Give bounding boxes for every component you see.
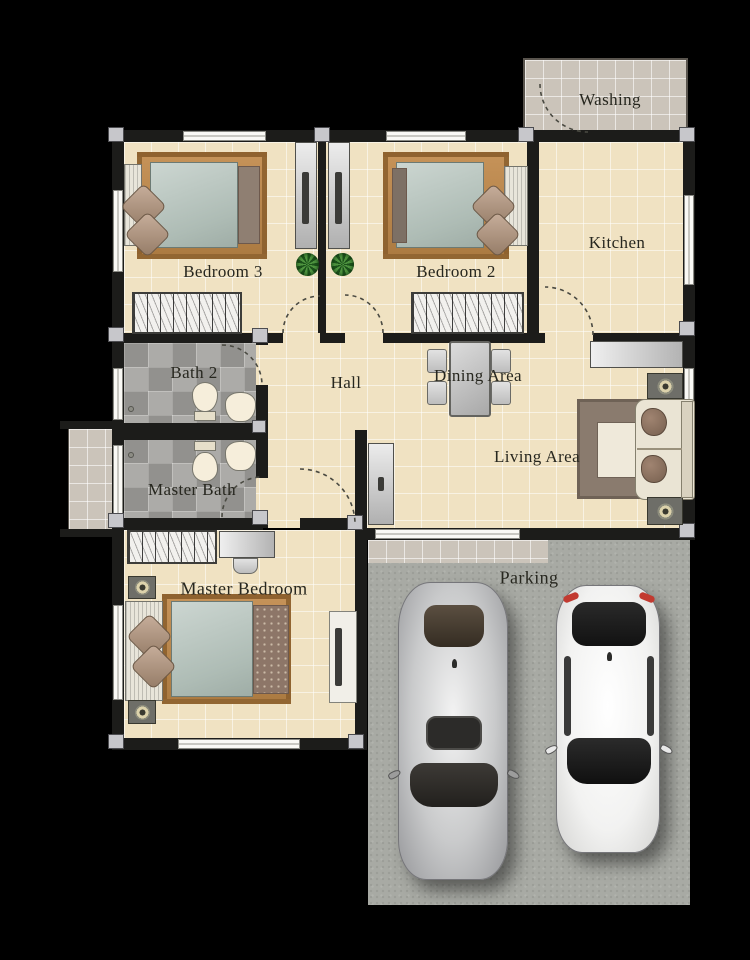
hall-cabinet-panel [335, 172, 342, 224]
bedroom2-wardrobe [411, 292, 524, 334]
corner-block [679, 321, 695, 336]
corner-block [252, 420, 266, 433]
potted-plant [296, 253, 319, 276]
master-speaker [128, 576, 156, 599]
window-masterbath-left [113, 445, 123, 518]
master-mattress [171, 601, 253, 697]
room-label-masterbath: Master Bath [148, 480, 236, 500]
sofa-cushion [641, 408, 667, 436]
window-bath2-left [113, 368, 123, 420]
bedroom3-wardrobe [132, 292, 242, 334]
car-white [556, 585, 660, 853]
room-label-living: Living Area [494, 447, 580, 467]
entrance-sliding-door [375, 529, 520, 539]
car-windshield [567, 738, 651, 784]
wall-porch-bottom [60, 529, 124, 537]
entry-walkway-tiles [368, 540, 548, 563]
master-tv-cabinet [329, 611, 357, 703]
master-tv [335, 628, 342, 686]
corner-block [108, 127, 124, 142]
bath-fitting [128, 406, 134, 412]
wall-porch-top [60, 421, 124, 429]
master-speaker [128, 700, 156, 724]
wall-bedroom2-kitchen [527, 142, 539, 333]
corner-block [108, 734, 124, 749]
living-sideboard [590, 341, 683, 368]
master-wardrobe [127, 530, 217, 564]
bedroom3-folded-blanket [238, 166, 260, 244]
entry-cabinet-handle [378, 477, 384, 491]
car-roof-glass [572, 602, 646, 646]
wall-bedroom-divider [318, 142, 326, 333]
wall-bath-divider [124, 423, 268, 440]
room-label-hall: Hall [331, 373, 362, 393]
window-bedroom2-top [386, 131, 466, 141]
living-speaker [647, 373, 683, 399]
room-label-kitchen: Kitchen [589, 233, 646, 253]
masterbath-sink [225, 441, 256, 471]
car-silver [398, 582, 508, 880]
room-label-bedroom3: Bedroom 3 [183, 262, 263, 282]
potted-plant [331, 253, 354, 276]
master-dotted-blanket [253, 605, 289, 694]
corner-block [679, 127, 695, 142]
car-antenna [452, 659, 457, 668]
corner-block [252, 510, 268, 525]
window-master-bottom [178, 739, 300, 749]
room-label-parking: Parking [500, 568, 559, 589]
living-sofa-back [681, 401, 693, 498]
master-desk [219, 531, 275, 558]
corner-block [518, 127, 534, 142]
car-windshield [410, 763, 498, 807]
masterbath-toilet-bowl [192, 452, 218, 482]
window-bedroom3-left [113, 190, 123, 272]
corner-block [252, 328, 268, 343]
hall-cabinet-panel [302, 172, 309, 224]
bath2-toilet-tank [194, 411, 216, 421]
corner-block [348, 734, 364, 749]
wall-bedrooms-bottom-b [320, 333, 345, 343]
car-side-window [647, 656, 654, 736]
bedroom2-footboard [392, 168, 407, 243]
corner-block [314, 127, 330, 142]
car-rear-window [424, 605, 484, 647]
sofa-cushion [641, 455, 667, 483]
wall-master-top-a [112, 518, 263, 530]
living-speaker [647, 497, 683, 525]
bath2-toilet-bowl [192, 382, 218, 412]
room-label-masterbedroom: Master Bedroom [180, 579, 307, 600]
masterbath-toilet-tank [194, 441, 216, 451]
corner-block [679, 523, 695, 538]
room-label-bedroom2: Bedroom 2 [416, 262, 496, 282]
living-sofa-seam [637, 448, 682, 450]
room-label-washing: Washing [579, 90, 641, 110]
corner-block [347, 515, 363, 530]
bath-fitting [128, 452, 134, 458]
room-label-dining: Dining Area [434, 366, 522, 386]
corner-block [108, 327, 124, 342]
master-desk-chair [233, 558, 258, 574]
bath2-sink [225, 392, 256, 422]
bedroom2-mattress [396, 162, 484, 248]
corner-block [108, 513, 124, 528]
window-master-left [113, 605, 123, 700]
window-kitchen-right [684, 195, 694, 285]
floor-plan: Washing Kitchen Bedroom 3 Bedroom 2 Bath… [0, 0, 750, 960]
room-label-bath2: Bath 2 [170, 363, 217, 383]
car-antenna [607, 652, 612, 661]
car-sunroof [426, 716, 482, 750]
car-side-window [564, 656, 571, 736]
window-bedroom3-top [183, 131, 266, 141]
